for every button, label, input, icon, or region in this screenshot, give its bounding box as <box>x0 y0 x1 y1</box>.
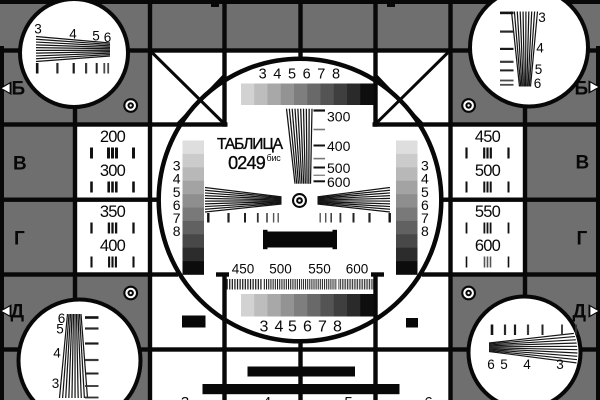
svg-text:ТАБЛИЦА: ТАБЛИЦА <box>217 136 284 153</box>
svg-text:Д: Д <box>573 302 587 323</box>
svg-text:8: 8 <box>421 223 429 239</box>
svg-text:3: 3 <box>34 22 42 37</box>
svg-text:500: 500 <box>475 162 501 180</box>
svg-text:5: 5 <box>535 62 543 77</box>
svg-text:400: 400 <box>327 138 351 154</box>
svg-text:4: 4 <box>275 319 284 336</box>
svg-text:3: 3 <box>181 394 189 400</box>
svg-text:450: 450 <box>475 128 501 146</box>
svg-text:В: В <box>576 153 590 174</box>
svg-text:500: 500 <box>269 262 292 277</box>
svg-text:400: 400 <box>100 237 126 255</box>
svg-text:350: 350 <box>100 203 126 221</box>
svg-text:600: 600 <box>346 262 369 277</box>
svg-text:5: 5 <box>344 394 352 400</box>
svg-text:450: 450 <box>232 262 255 277</box>
svg-text:300: 300 <box>100 162 126 180</box>
svg-text:4: 4 <box>536 41 544 56</box>
svg-text:6: 6 <box>424 394 432 400</box>
svg-text:5: 5 <box>500 357 508 372</box>
svg-text:7: 7 <box>317 67 325 83</box>
svg-text:600: 600 <box>475 237 501 255</box>
svg-text:6: 6 <box>104 30 112 45</box>
svg-text:550: 550 <box>475 203 501 221</box>
svg-text:4: 4 <box>523 357 531 372</box>
svg-text:3: 3 <box>556 357 564 372</box>
svg-text:8: 8 <box>333 319 342 336</box>
svg-text:600: 600 <box>327 174 351 190</box>
svg-text:300: 300 <box>327 109 351 125</box>
svg-text:4: 4 <box>69 27 77 42</box>
svg-text:6: 6 <box>303 67 311 83</box>
svg-text:4: 4 <box>273 67 281 83</box>
svg-text:6: 6 <box>534 76 542 91</box>
svg-text:6: 6 <box>303 319 312 336</box>
svg-text:0249: 0249 <box>228 153 266 173</box>
svg-text:Б: Б <box>575 79 589 100</box>
svg-text:5: 5 <box>56 322 64 337</box>
svg-text:3: 3 <box>538 10 546 25</box>
svg-text:3: 3 <box>52 376 60 391</box>
svg-text:550: 550 <box>308 262 331 277</box>
svg-text:3: 3 <box>260 319 269 336</box>
svg-text:5: 5 <box>288 67 296 83</box>
svg-text:Г: Г <box>577 229 588 250</box>
svg-text:В: В <box>13 153 27 174</box>
svg-text:5: 5 <box>92 29 100 44</box>
svg-text:4: 4 <box>263 394 271 400</box>
svg-text:6: 6 <box>487 357 495 372</box>
svg-text:Б: Б <box>12 79 26 100</box>
svg-text:4: 4 <box>53 346 61 361</box>
svg-text:5: 5 <box>288 319 297 336</box>
svg-text:8: 8 <box>332 67 340 83</box>
svg-text:8: 8 <box>173 223 181 239</box>
svg-text:Г: Г <box>14 229 25 250</box>
svg-text:7: 7 <box>318 319 327 336</box>
svg-text:Д: Д <box>11 302 25 323</box>
svg-text:бис: бис <box>267 153 282 163</box>
svg-text:3: 3 <box>259 67 267 83</box>
svg-text:200: 200 <box>100 128 126 146</box>
